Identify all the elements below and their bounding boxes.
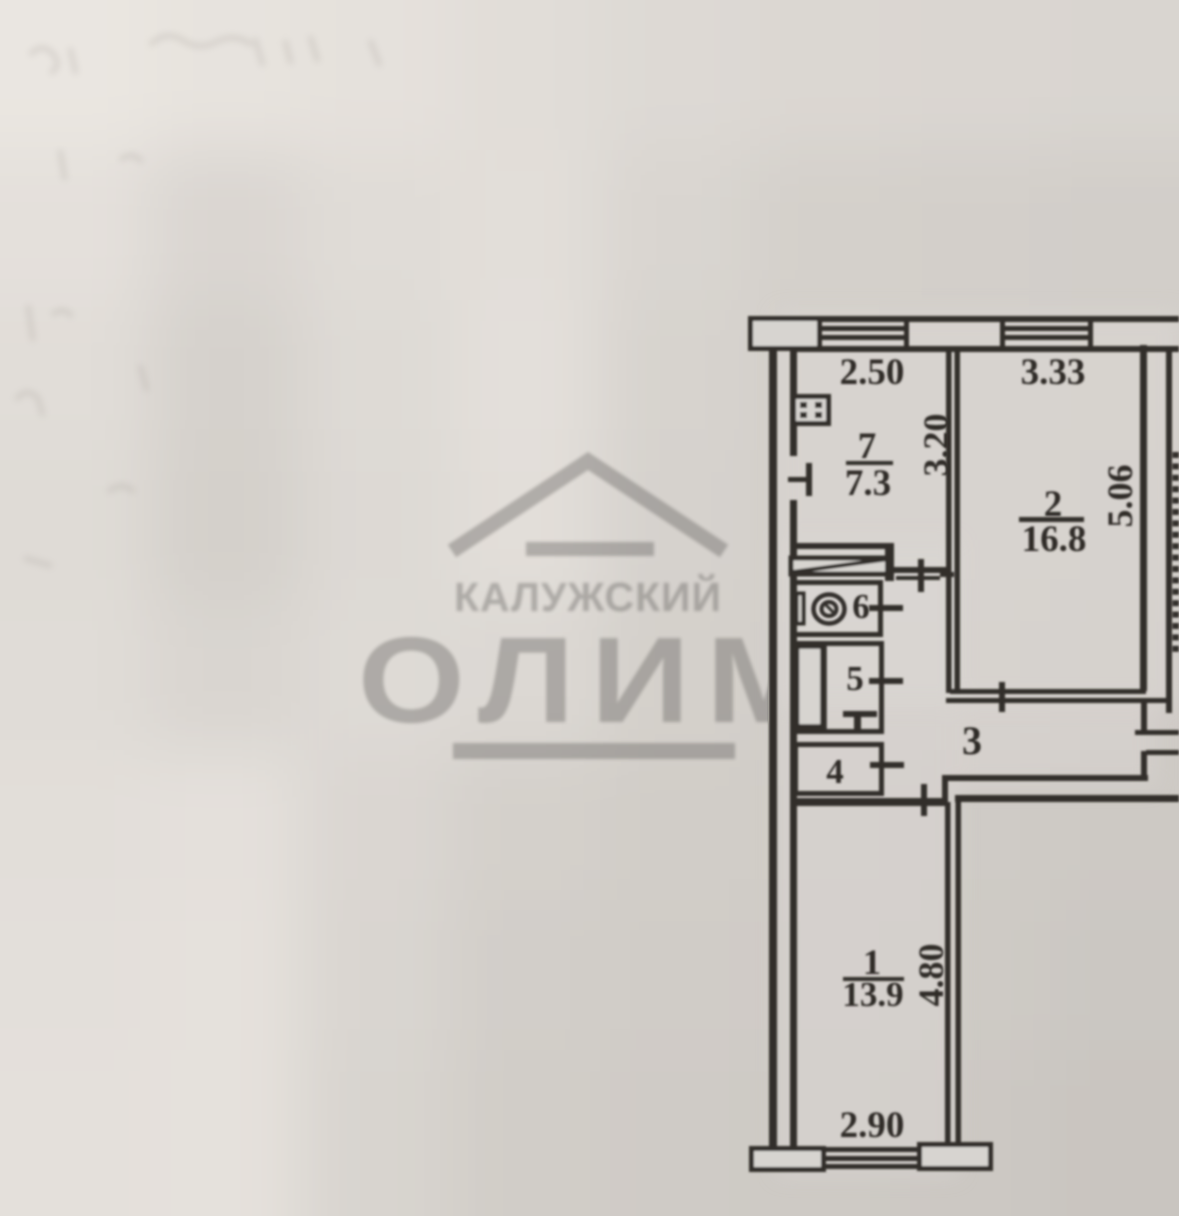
svg-text:2.90: 2.90	[840, 1105, 905, 1146]
svg-text:5.06: 5.06	[1100, 465, 1140, 528]
svg-text:6: 6	[852, 587, 870, 626]
svg-text:16.8: 16.8	[1022, 519, 1087, 560]
svg-text:4: 4	[826, 752, 844, 791]
svg-text:13.9: 13.9	[842, 975, 903, 1014]
svg-text:3.20: 3.20	[916, 414, 956, 477]
svg-text:4.80: 4.80	[911, 944, 951, 1007]
svg-text:3: 3	[962, 718, 982, 763]
svg-text:2.50: 2.50	[840, 352, 905, 393]
svg-text:7: 7	[858, 426, 877, 467]
svg-text:3.33: 3.33	[1021, 352, 1086, 393]
svg-text:5: 5	[846, 659, 864, 698]
svg-text:7.3: 7.3	[845, 463, 891, 504]
